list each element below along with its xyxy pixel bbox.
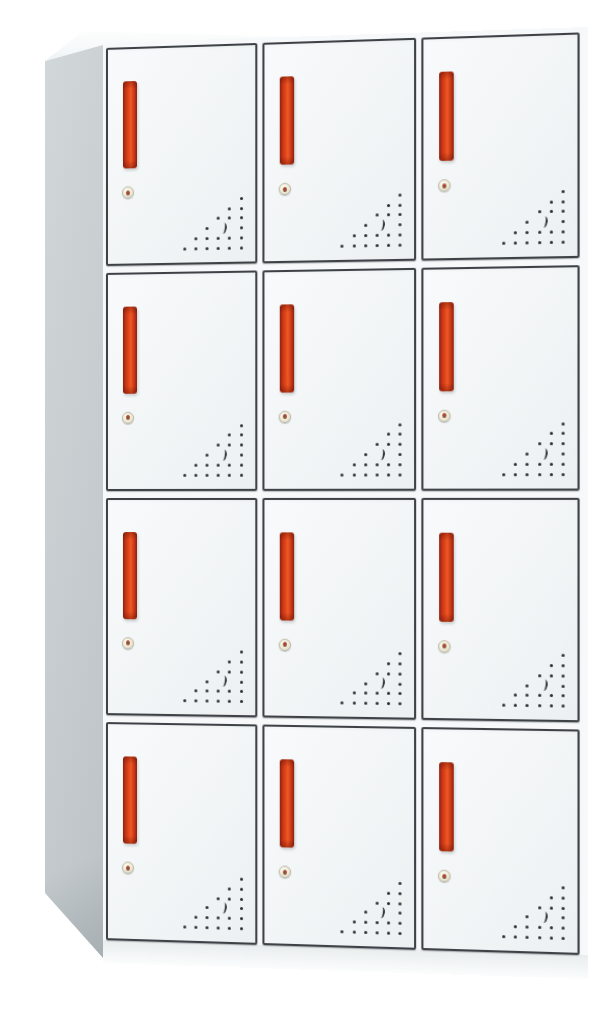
vent-hole-dot xyxy=(399,203,402,206)
vent-holes-triangle-icon xyxy=(341,652,402,706)
vent-hole-dot xyxy=(399,912,402,915)
locker-door-r2c3 xyxy=(422,265,580,490)
vent-hole-dot xyxy=(194,916,197,919)
vent-crescent-slot-icon xyxy=(377,448,386,460)
vent-hole-dot xyxy=(550,241,553,244)
vent-hole-dot xyxy=(538,704,541,707)
vent-hole-dot xyxy=(217,926,220,929)
vent-hole-dot xyxy=(387,214,390,217)
vent-hole-dot xyxy=(228,444,231,447)
vent-hole-dot xyxy=(514,925,517,928)
vent-hole-dot xyxy=(526,916,529,919)
vent-hole-dot xyxy=(228,660,231,663)
vent-hole-dot xyxy=(562,937,565,940)
vent-hole-dot xyxy=(240,700,243,703)
vent-hole-dot xyxy=(375,463,378,466)
vent-crescent-slot-icon xyxy=(539,216,548,228)
vent-hole-dot xyxy=(562,684,565,687)
vent-hole-dot xyxy=(550,200,553,203)
vent-hole-dot xyxy=(375,672,378,675)
vent-hole-dot xyxy=(387,892,390,895)
vent-hole-dot xyxy=(562,210,565,213)
vent-hole-dot xyxy=(562,927,565,930)
vent-hole-dot xyxy=(194,690,197,693)
vent-hole-dot xyxy=(206,227,209,230)
vent-hole-dot xyxy=(387,672,390,675)
keyhole-lock-icon xyxy=(438,640,451,652)
vent-hole-dot xyxy=(526,241,529,244)
vent-hole-dot xyxy=(514,935,517,938)
vent-hole-dot xyxy=(514,704,517,707)
vent-hole-dot xyxy=(375,244,378,247)
vent-hole-dot xyxy=(352,234,355,237)
vent-hole-dot xyxy=(387,662,390,665)
vent-hole-dot xyxy=(562,473,565,476)
vent-hole-dot xyxy=(228,207,231,210)
vent-hole-dot xyxy=(206,680,209,683)
vent-hole-dot xyxy=(387,932,390,935)
vent-hole-dot xyxy=(206,916,209,919)
vent-hole-dot xyxy=(364,692,367,695)
vent-hole-dot xyxy=(526,936,529,939)
vent-hole-dot xyxy=(387,902,390,905)
vent-hole-dot xyxy=(364,244,367,247)
vent-hole-dot xyxy=(387,233,390,236)
locker-door-r2c1 xyxy=(106,270,257,490)
vent-hole-dot xyxy=(341,930,344,933)
vent-hole-dot xyxy=(538,462,541,465)
vent-hole-dot xyxy=(526,684,529,687)
locker-door-r1c1 xyxy=(106,43,257,266)
keyhole-lock-icon xyxy=(278,183,290,195)
vent-crescent-slot-icon xyxy=(219,449,228,461)
vent-crescent-slot-icon xyxy=(539,447,548,459)
vertical-bar-handle-icon xyxy=(439,71,454,161)
vent-hole-dot xyxy=(240,434,243,437)
vent-hole-dot xyxy=(240,917,243,920)
vent-hole-dot xyxy=(364,453,367,456)
vent-hole-dot xyxy=(240,878,243,881)
vent-hole-dot xyxy=(240,226,243,229)
vent-hole-dot xyxy=(562,432,565,435)
vent-hole-dot xyxy=(550,896,553,899)
vent-hole-dot xyxy=(514,463,517,466)
vent-hole-dot xyxy=(375,214,378,217)
vent-hole-dot xyxy=(399,213,402,216)
vent-crescent-slot-icon xyxy=(219,675,228,687)
vent-hole-dot xyxy=(217,237,220,240)
vent-hole-dot xyxy=(228,887,231,890)
vent-hole-dot xyxy=(562,695,565,698)
vent-hole-dot xyxy=(562,906,565,909)
keyhole-icon xyxy=(126,865,130,870)
vent-hole-dot xyxy=(502,473,505,476)
keyhole-lock-icon xyxy=(278,411,290,423)
vent-hole-dot xyxy=(217,917,220,920)
vent-hole-dot xyxy=(562,462,565,465)
vent-hole-dot xyxy=(240,463,243,466)
vent-hole-dot xyxy=(502,241,505,244)
vent-hole-dot xyxy=(538,926,541,929)
vent-hole-dot xyxy=(562,896,565,899)
vent-hole-dot xyxy=(240,927,243,930)
keyhole-icon xyxy=(283,186,287,191)
vent-hole-dot xyxy=(375,901,378,904)
vent-hole-dot xyxy=(562,220,565,223)
vent-crescent-slot-icon xyxy=(219,902,228,914)
vent-hole-dot xyxy=(550,442,553,445)
locker-door-r1c2 xyxy=(262,38,416,263)
cabinet-side-panel xyxy=(45,44,104,959)
vent-hole-dot xyxy=(206,473,209,476)
vent-hole-dot xyxy=(240,473,243,476)
product-photo-canvas xyxy=(0,0,605,1009)
vent-hole-dot xyxy=(228,434,231,437)
vent-hole-dot xyxy=(364,911,367,914)
vertical-bar-handle-icon xyxy=(279,76,293,165)
vent-hole-dot xyxy=(526,462,529,465)
vent-hole-dot xyxy=(562,705,565,708)
vent-hole-dot xyxy=(538,694,541,697)
vent-hole-dot xyxy=(228,217,231,220)
vent-hole-dot xyxy=(194,926,197,929)
vent-hole-dot xyxy=(514,473,517,476)
vertical-bar-handle-icon xyxy=(439,302,454,391)
vent-hole-dot xyxy=(194,473,197,476)
vent-hole-dot xyxy=(217,473,220,476)
vent-hole-dot xyxy=(183,247,186,250)
vent-hole-dot xyxy=(538,231,541,234)
vent-hole-dot xyxy=(375,234,378,237)
vent-hole-dot xyxy=(228,690,231,693)
vent-hole-dot xyxy=(206,247,209,250)
vertical-bar-handle-icon xyxy=(123,306,137,393)
vent-hole-dot xyxy=(399,692,402,695)
vent-hole-dot xyxy=(206,926,209,929)
locker-door-r1c3 xyxy=(422,32,580,260)
vent-hole-dot xyxy=(240,907,243,910)
vent-hole-dot xyxy=(387,473,390,476)
vent-hole-dot xyxy=(399,243,402,246)
vent-hole-dot xyxy=(217,690,220,693)
vent-hole-dot xyxy=(538,674,541,677)
vent-hole-dot xyxy=(364,921,367,924)
vent-hole-dot xyxy=(399,233,402,236)
vent-hole-dot xyxy=(206,690,209,693)
vent-hole-dot xyxy=(364,473,367,476)
vent-hole-dot xyxy=(375,443,378,446)
vent-hole-dot xyxy=(183,699,186,702)
vent-hole-dot xyxy=(240,197,243,200)
vent-hole-dot xyxy=(240,888,243,891)
vent-hole-dot xyxy=(514,231,517,234)
vent-hole-dot xyxy=(399,463,402,466)
vent-hole-dot xyxy=(550,462,553,465)
vent-holes-triangle-icon xyxy=(502,422,565,476)
vent-hole-dot xyxy=(375,931,378,934)
vent-hole-dot xyxy=(562,664,565,667)
vent-hole-dot xyxy=(217,463,220,466)
keyhole-icon xyxy=(443,643,447,648)
locker-door-r4c3 xyxy=(422,727,580,955)
vent-hole-dot xyxy=(562,422,565,425)
vent-hole-dot xyxy=(240,236,243,239)
vent-hole-dot xyxy=(550,473,553,476)
vertical-bar-handle-icon xyxy=(439,762,454,851)
vent-hole-dot xyxy=(206,700,209,703)
locker-door-r4c2 xyxy=(262,725,416,950)
vent-hole-dot xyxy=(538,473,541,476)
vent-hole-dot xyxy=(562,917,565,920)
vent-hole-dot xyxy=(562,190,565,193)
vent-hole-dot xyxy=(550,674,553,677)
keyhole-icon xyxy=(283,869,287,874)
vent-hole-dot xyxy=(562,230,565,233)
vent-hole-dot xyxy=(240,444,243,447)
vent-hole-dot xyxy=(206,237,209,240)
vent-holes-triangle-icon xyxy=(502,885,565,940)
vent-hole-dot xyxy=(228,700,231,703)
keyhole-lock-icon xyxy=(122,637,134,649)
keyhole-icon xyxy=(443,183,447,188)
vent-hole-dot xyxy=(364,234,367,237)
vent-hole-dot xyxy=(550,210,553,213)
vent-hole-dot xyxy=(562,240,565,243)
vent-hole-dot xyxy=(352,244,355,247)
vent-hole-dot xyxy=(399,473,402,476)
vent-hole-dot xyxy=(526,694,529,697)
keyhole-lock-icon xyxy=(278,638,290,650)
keyhole-icon xyxy=(283,414,287,419)
vent-holes-triangle-icon xyxy=(183,650,243,703)
keyhole-lock-icon xyxy=(438,179,451,192)
vent-crescent-slot-icon xyxy=(219,222,228,234)
vent-hole-dot xyxy=(194,237,197,240)
vent-hole-dot xyxy=(399,453,402,456)
keyhole-icon xyxy=(126,640,130,645)
vent-hole-dot xyxy=(387,463,390,466)
vent-hole-dot xyxy=(399,423,402,426)
vent-hole-dot xyxy=(240,651,243,654)
vent-crescent-slot-icon xyxy=(539,679,548,691)
vent-hole-dot xyxy=(562,674,565,677)
vent-hole-dot xyxy=(387,433,390,436)
keyhole-lock-icon xyxy=(122,862,134,874)
vent-hole-dot xyxy=(526,452,529,455)
vent-hole-dot xyxy=(352,921,355,924)
vent-hole-dot xyxy=(364,702,367,705)
vent-hole-dot xyxy=(228,473,231,476)
vent-hole-dot xyxy=(550,694,553,697)
vent-hole-dot xyxy=(240,661,243,664)
vent-hole-dot xyxy=(550,936,553,939)
vent-hole-dot xyxy=(375,692,378,695)
vent-hole-dot xyxy=(228,463,231,466)
vent-holes-triangle-icon xyxy=(183,197,243,251)
vent-hole-dot xyxy=(217,217,220,220)
vent-crescent-slot-icon xyxy=(377,906,386,918)
vent-hole-dot xyxy=(341,473,344,476)
vent-hole-dot xyxy=(194,700,197,703)
vent-hole-dot xyxy=(240,424,243,427)
vent-hole-dot xyxy=(228,670,231,673)
keyhole-icon xyxy=(443,874,447,879)
cabinet-front-face xyxy=(103,27,588,979)
vent-hole-dot xyxy=(240,207,243,210)
vent-hole-dot xyxy=(217,444,220,447)
vent-holes-triangle-icon xyxy=(341,880,402,935)
vent-hole-dot xyxy=(341,702,344,705)
vent-hole-dot xyxy=(387,702,390,705)
vent-hole-dot xyxy=(399,223,402,226)
vertical-bar-handle-icon xyxy=(279,304,293,392)
vent-hole-dot xyxy=(206,463,209,466)
vent-holes-triangle-icon xyxy=(341,423,402,476)
vent-hole-dot xyxy=(375,473,378,476)
vertical-bar-handle-icon xyxy=(123,81,137,169)
vent-crescent-slot-icon xyxy=(377,219,386,231)
vent-hole-dot xyxy=(240,680,243,683)
vent-hole-dot xyxy=(375,921,378,924)
vent-hole-dot xyxy=(526,926,529,929)
locker-door-grid xyxy=(106,32,580,954)
vertical-bar-handle-icon xyxy=(439,532,454,621)
locker-door-r2c2 xyxy=(262,268,416,491)
vent-hole-dot xyxy=(387,204,390,207)
vent-holes-triangle-icon xyxy=(183,876,243,930)
vent-hole-dot xyxy=(217,700,220,703)
vent-crescent-slot-icon xyxy=(539,911,548,923)
vent-hole-dot xyxy=(240,246,243,249)
vent-hole-dot xyxy=(387,692,390,695)
vent-hole-dot xyxy=(352,702,355,705)
vent-hole-dot xyxy=(399,892,402,895)
vent-hole-dot xyxy=(538,906,541,909)
vent-hole-dot xyxy=(550,664,553,667)
keyhole-icon xyxy=(126,415,130,420)
vent-hole-dot xyxy=(399,902,402,905)
vent-hole-dot xyxy=(387,244,390,247)
vent-hole-dot xyxy=(183,925,186,928)
vent-crescent-slot-icon xyxy=(377,677,386,689)
locker-door-r3c1 xyxy=(106,497,257,717)
vent-hole-dot xyxy=(399,882,402,885)
vent-hole-dot xyxy=(228,246,231,249)
vent-hole-dot xyxy=(526,704,529,707)
vent-holes-triangle-icon xyxy=(341,193,402,247)
vent-hole-dot xyxy=(562,886,565,889)
vent-hole-dot xyxy=(352,473,355,476)
vent-hole-dot xyxy=(514,694,517,697)
vent-hole-dot xyxy=(550,432,553,435)
vent-hole-dot xyxy=(550,705,553,708)
vent-hole-dot xyxy=(399,922,402,925)
vent-hole-dot xyxy=(399,932,402,935)
vent-hole-dot xyxy=(194,463,197,466)
vent-hole-dot xyxy=(550,230,553,233)
vent-hole-dot xyxy=(240,217,243,220)
vent-hole-dot xyxy=(399,702,402,705)
vent-hole-dot xyxy=(502,704,505,707)
keyhole-lock-icon xyxy=(438,409,451,421)
vent-hole-dot xyxy=(240,690,243,693)
keyhole-icon xyxy=(443,413,447,418)
vent-hole-dot xyxy=(502,935,505,938)
vent-hole-dot xyxy=(228,917,231,920)
vent-hole-dot xyxy=(399,662,402,665)
vent-hole-dot xyxy=(399,193,402,196)
vent-hole-dot xyxy=(387,922,390,925)
vent-hole-dot xyxy=(352,692,355,695)
vent-hole-dot xyxy=(206,454,209,457)
vent-hole-dot xyxy=(538,936,541,939)
vent-hole-dot xyxy=(399,652,402,655)
vent-hole-dot xyxy=(240,897,243,900)
locker-door-r3c2 xyxy=(262,497,416,720)
keyhole-lock-icon xyxy=(278,866,290,878)
locker-door-r3c3 xyxy=(422,497,580,722)
keyhole-lock-icon xyxy=(122,186,134,198)
vent-hole-dot xyxy=(217,897,220,900)
vent-hole-dot xyxy=(550,906,553,909)
vent-hole-dot xyxy=(526,221,529,224)
vent-hole-dot xyxy=(341,244,344,247)
vent-hole-dot xyxy=(364,224,367,227)
keyhole-lock-icon xyxy=(438,870,451,883)
vent-hole-dot xyxy=(364,463,367,466)
vent-hole-dot xyxy=(562,442,565,445)
vent-hole-dot xyxy=(562,200,565,203)
vent-hole-dot xyxy=(217,247,220,250)
vent-hole-dot xyxy=(387,443,390,446)
vent-hole-dot xyxy=(364,682,367,685)
vent-hole-dot xyxy=(399,672,402,675)
vent-hole-dot xyxy=(399,433,402,436)
vent-hole-dot xyxy=(228,237,231,240)
vent-hole-dot xyxy=(375,702,378,705)
vent-hole-dot xyxy=(240,670,243,673)
vertical-bar-handle-icon xyxy=(279,759,293,847)
locker-door-r4c1 xyxy=(106,722,257,945)
vent-hole-dot xyxy=(550,926,553,929)
vent-hole-dot xyxy=(240,453,243,456)
vent-hole-dot xyxy=(538,442,541,445)
keyhole-icon xyxy=(126,190,130,195)
keyhole-lock-icon xyxy=(122,412,134,424)
vent-hole-dot xyxy=(217,670,220,673)
vent-hole-dot xyxy=(562,452,565,455)
vertical-bar-handle-icon xyxy=(123,532,137,619)
vent-hole-dot xyxy=(514,241,517,244)
vent-hole-dot xyxy=(228,897,231,900)
vertical-bar-handle-icon xyxy=(123,757,137,844)
keyhole-icon xyxy=(283,642,287,647)
vent-hole-dot xyxy=(228,927,231,930)
vent-hole-dot xyxy=(526,231,529,234)
vent-holes-triangle-icon xyxy=(502,190,565,245)
vent-hole-dot xyxy=(538,241,541,244)
vent-hole-dot xyxy=(526,473,529,476)
vent-hole-dot xyxy=(206,906,209,909)
vent-hole-dot xyxy=(352,463,355,466)
vent-holes-triangle-icon xyxy=(502,653,565,707)
vertical-bar-handle-icon xyxy=(279,532,293,620)
vent-hole-dot xyxy=(399,682,402,685)
vent-hole-dot xyxy=(399,443,402,446)
vent-hole-dot xyxy=(194,247,197,250)
vent-hole-dot xyxy=(562,654,565,657)
vent-hole-dot xyxy=(364,931,367,934)
